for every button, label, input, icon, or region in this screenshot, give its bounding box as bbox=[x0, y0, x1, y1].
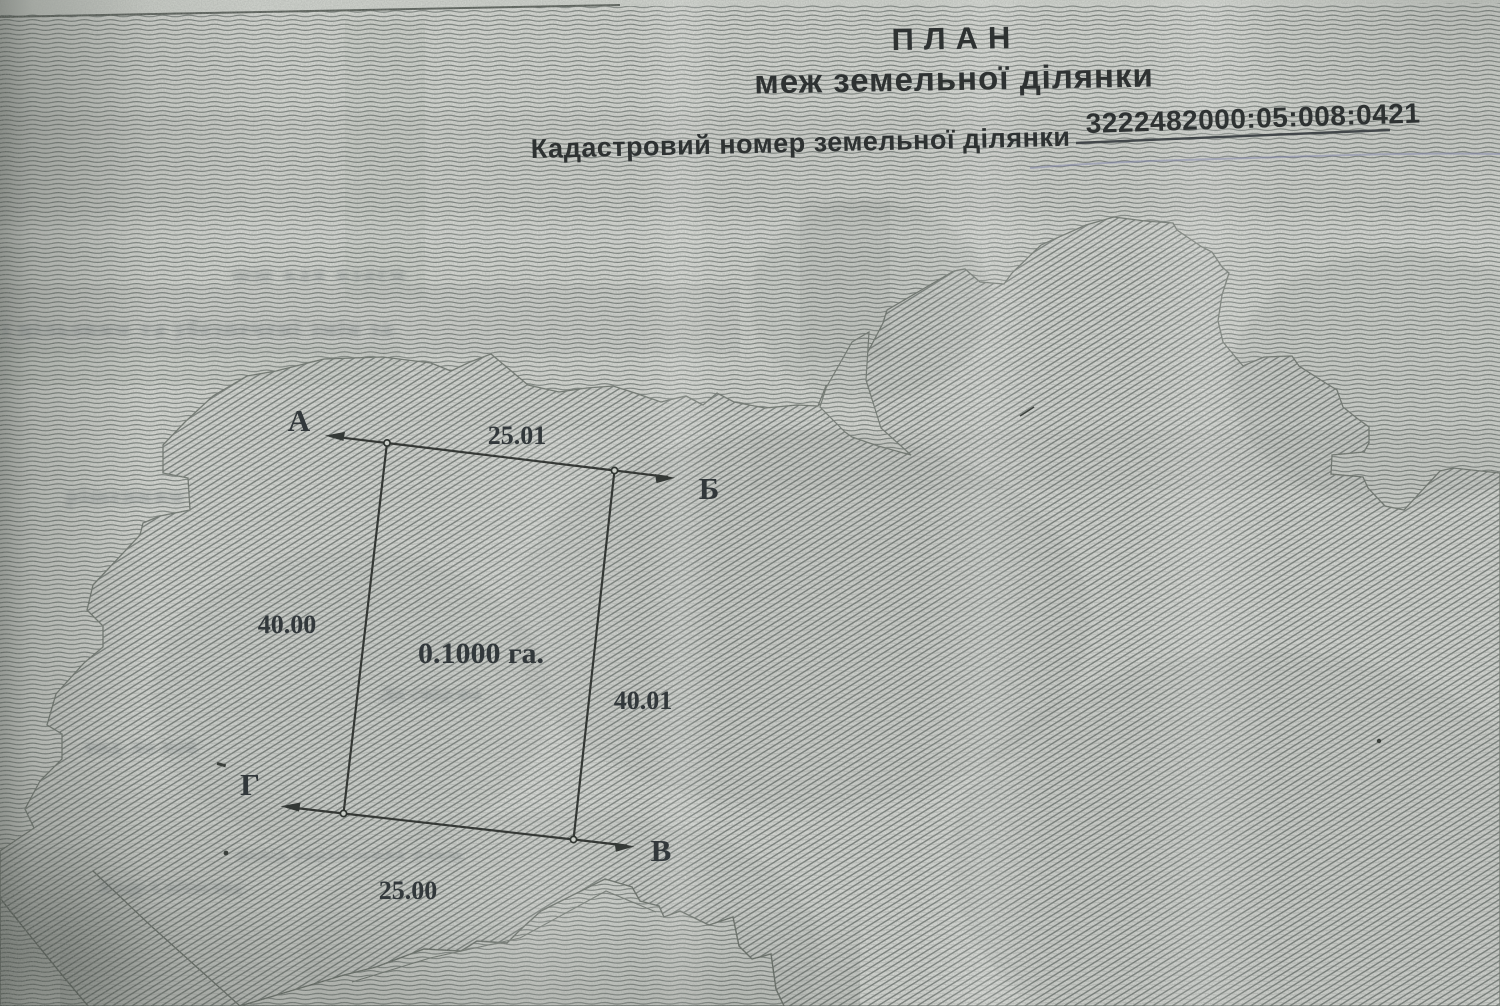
svg-text:з цільовим та убезпечені змін: з цільовим та убезпечені змін за bbox=[0, 316, 395, 341]
svg-text:— --- -: — --- - bbox=[1377, 199, 1434, 215]
svg-text:До свід-ва: До свід-ва bbox=[380, 683, 482, 705]
svg-text:меж земельної ділянки: меж земельної ділянки bbox=[754, 57, 1154, 101]
svg-text:Кадастровий номер земельної ді: Кадастровий номер земельної ділянки bbox=[530, 122, 1070, 164]
svg-text:невід окремлення площ: невід окремлення площ bbox=[238, 845, 463, 864]
svg-text:Б: Б bbox=[699, 471, 720, 506]
svg-text:40.00: 40.00 bbox=[258, 610, 317, 639]
svg-text:шш кая взаєм: шш кая взаєм bbox=[232, 261, 408, 286]
svg-text:25.01: 25.01 bbox=[488, 421, 547, 450]
svg-text:вид. на пай: вид. на пай bbox=[85, 736, 198, 758]
svg-text:А: А bbox=[288, 403, 311, 438]
svg-text:40.01: 40.01 bbox=[614, 686, 673, 715]
svg-text:0.1000 га.: 0.1000 га. bbox=[418, 637, 544, 670]
svg-text:Г: Г bbox=[240, 767, 260, 802]
svg-text:3222482000:05:008:0421: 3222482000:05:008:0421 bbox=[1085, 97, 1421, 139]
svg-text:В: В bbox=[651, 833, 672, 868]
svg-text:ПЛАН: ПЛАН bbox=[891, 20, 1020, 57]
svg-text:25.00: 25.00 bbox=[379, 876, 438, 905]
svg-text:рішенням: рішенням bbox=[66, 483, 185, 508]
svg-text:Кадр-Світогляд: Кадр-Світогляд bbox=[100, 877, 242, 897]
